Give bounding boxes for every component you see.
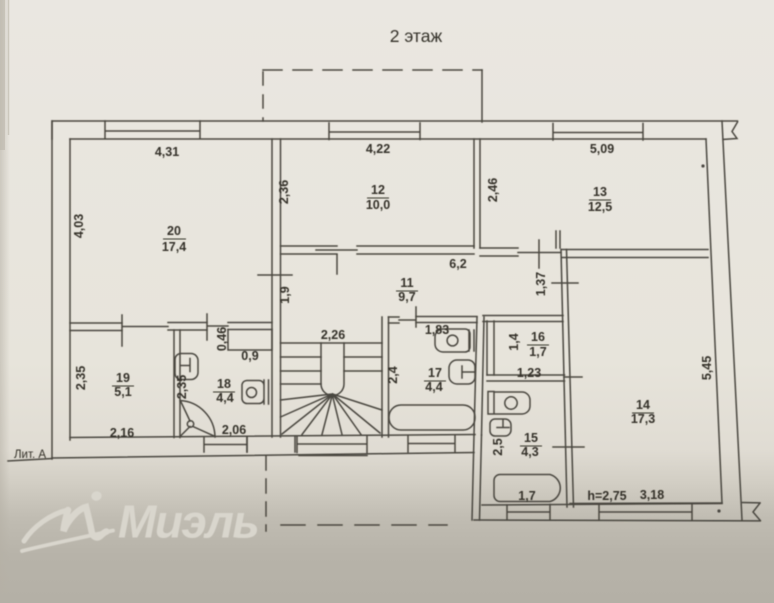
svg-text:0,46: 0,46: [215, 327, 229, 351]
svg-text:13: 13: [593, 185, 607, 199]
svg-text:1,37: 1,37: [534, 272, 548, 296]
svg-text:17,4: 17,4: [162, 240, 186, 254]
svg-text:17,3: 17,3: [631, 412, 655, 426]
svg-text:6,2: 6,2: [449, 257, 466, 271]
svg-text:9,7: 9,7: [398, 290, 415, 304]
svg-text:10,0: 10,0: [366, 198, 390, 212]
svg-text:15: 15: [524, 431, 538, 445]
svg-text:1,83: 1,83: [425, 323, 449, 337]
svg-text:2 этаж: 2 этаж: [390, 26, 443, 46]
svg-text:4,31: 4,31: [155, 145, 179, 159]
svg-text:11: 11: [400, 276, 413, 290]
svg-text:18: 18: [217, 377, 231, 391]
svg-text:h=2,75: h=2,75: [587, 489, 626, 503]
svg-text:2,16: 2,16: [110, 426, 134, 440]
svg-text:12: 12: [371, 183, 385, 197]
svg-text:2,4: 2,4: [386, 366, 400, 383]
svg-text:3,18: 3,18: [640, 488, 664, 502]
svg-text:2,5: 2,5: [491, 438, 505, 455]
svg-text:Лит. А: Лит. А: [14, 449, 46, 461]
svg-text:2,06: 2,06: [222, 423, 246, 437]
svg-text:5,09: 5,09: [590, 142, 614, 156]
svg-text:1,4: 1,4: [507, 333, 521, 350]
svg-text:4,03: 4,03: [72, 214, 86, 238]
svg-text:0,9: 0,9: [241, 349, 258, 363]
svg-text:4,4: 4,4: [216, 391, 233, 405]
svg-text:Миэль: Миэль: [118, 496, 258, 548]
svg-text:4,22: 4,22: [366, 142, 390, 156]
svg-text:1,9: 1,9: [278, 286, 292, 303]
svg-text:1,7: 1,7: [529, 345, 546, 359]
svg-text:2,26: 2,26: [321, 328, 345, 342]
svg-text:14: 14: [636, 398, 650, 412]
svg-text:2,36: 2,36: [277, 180, 291, 204]
svg-text:20: 20: [167, 224, 181, 238]
svg-text:1,7: 1,7: [518, 489, 535, 503]
svg-text:12,5: 12,5: [588, 200, 612, 214]
svg-text:5,45: 5,45: [700, 356, 714, 380]
svg-text:1,23: 1,23: [517, 366, 541, 380]
svg-text:4,3: 4,3: [521, 445, 538, 459]
svg-text:17: 17: [428, 366, 442, 380]
svg-text:16: 16: [531, 330, 545, 344]
svg-text:2,46: 2,46: [486, 178, 500, 202]
svg-text:4,4: 4,4: [425, 380, 442, 394]
svg-text:19: 19: [116, 371, 130, 385]
svg-text:2,35: 2,35: [74, 366, 88, 390]
svg-text:2,35: 2,35: [175, 375, 189, 399]
svg-text:5,1: 5,1: [114, 385, 131, 399]
